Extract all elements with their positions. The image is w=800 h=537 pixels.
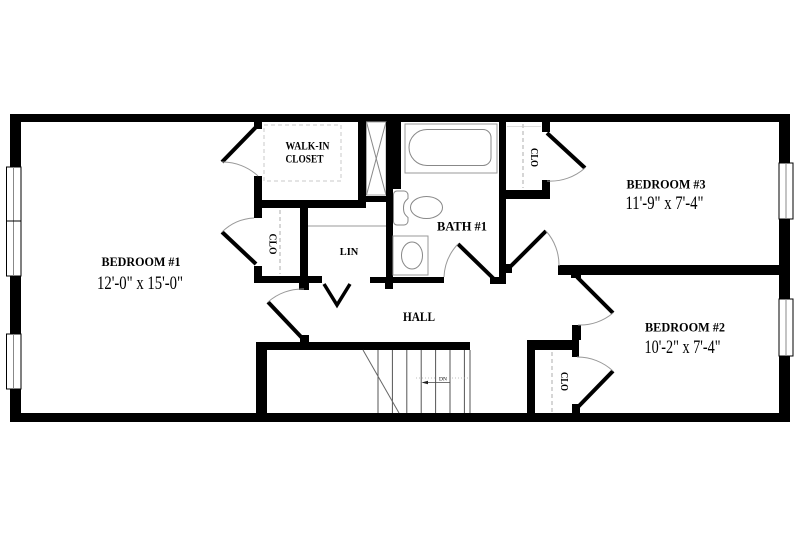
svg-text:DN: DN bbox=[439, 377, 447, 383]
svg-text:LIN: LIN bbox=[340, 246, 359, 258]
svg-text:11'-9" x 7'-4": 11'-9" x 7'-4" bbox=[626, 194, 704, 214]
svg-text:BEDROOM #3: BEDROOM #3 bbox=[627, 177, 706, 192]
svg-text:CLO: CLO bbox=[267, 234, 279, 255]
svg-text:CLO: CLO bbox=[528, 148, 540, 167]
svg-text:12'-0" x 15'-0": 12'-0" x 15'-0" bbox=[97, 274, 183, 294]
svg-text:CLO: CLO bbox=[558, 372, 570, 391]
svg-text:HALL: HALL bbox=[403, 309, 435, 324]
svg-text:10'-2" x 7'-4": 10'-2" x 7'-4" bbox=[645, 338, 721, 358]
svg-text:BEDROOM #1: BEDROOM #1 bbox=[102, 254, 181, 269]
svg-text:WALK-IN: WALK-IN bbox=[286, 139, 330, 153]
svg-text:BEDROOM #2: BEDROOM #2 bbox=[645, 320, 725, 335]
svg-text:CLOSET: CLOSET bbox=[286, 152, 324, 166]
svg-text:BATH #1: BATH #1 bbox=[437, 219, 487, 234]
